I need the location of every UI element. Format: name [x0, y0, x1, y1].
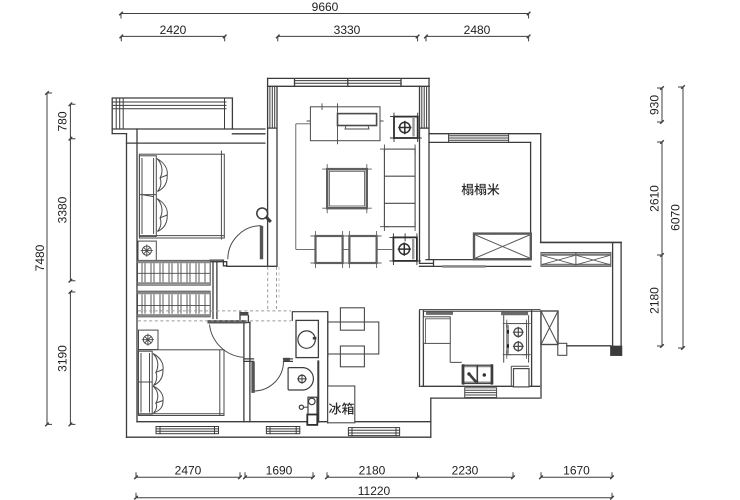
- svg-text:7480: 7480: [33, 244, 47, 271]
- svg-text:2180: 2180: [648, 287, 662, 314]
- svg-text:2180: 2180: [359, 464, 386, 478]
- svg-text:2230: 2230: [452, 464, 479, 478]
- svg-text:9660: 9660: [312, 0, 339, 14]
- svg-text:1690: 1690: [266, 464, 293, 478]
- svg-text:1670: 1670: [563, 464, 590, 478]
- svg-text:930: 930: [648, 95, 662, 115]
- svg-text:6070: 6070: [669, 204, 683, 231]
- svg-text:3330: 3330: [334, 23, 361, 37]
- svg-text:2420: 2420: [160, 23, 187, 37]
- svg-text:2470: 2470: [175, 464, 202, 478]
- svg-text:11220: 11220: [358, 484, 391, 498]
- svg-text:3380: 3380: [56, 196, 70, 223]
- svg-text:2610: 2610: [648, 185, 662, 212]
- svg-text:3190: 3190: [56, 345, 70, 372]
- svg-text:2480: 2480: [464, 23, 491, 37]
- svg-text:780: 780: [56, 111, 70, 131]
